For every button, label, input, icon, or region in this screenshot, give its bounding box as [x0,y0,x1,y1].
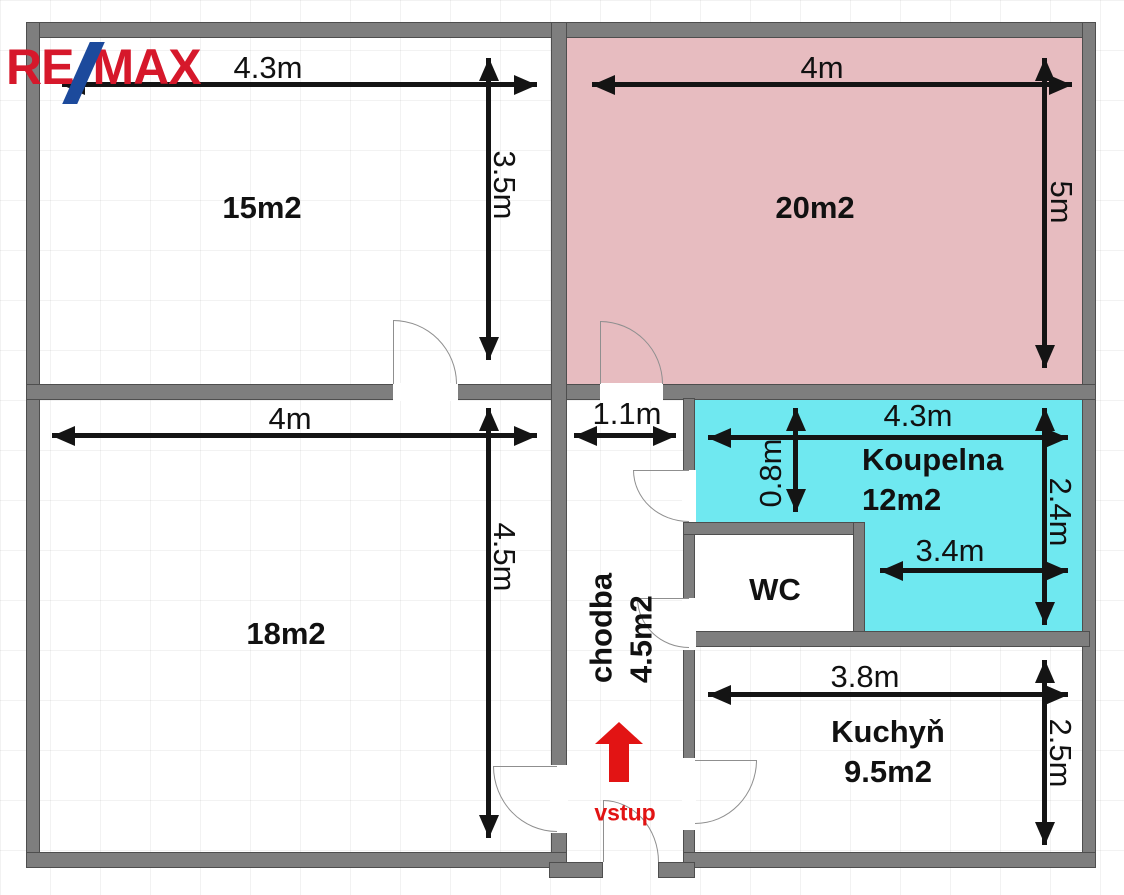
dim-arrow-chodba-width [574,433,676,438]
wall-entrance-right [658,862,695,878]
dim-label-kuchyn-width: 3.8m [831,659,900,695]
dim-label-r20-width: 4m [800,50,843,86]
room-label-18m2: 18m2 [246,616,325,652]
kuchyn-area: 9.5m2 [831,752,945,792]
door-arc-15m2 [393,320,457,384]
dim-label-r15-height: 3.5m [486,151,522,220]
entrance-arrow-shaft [609,743,629,782]
wall-wc-right [853,522,865,647]
chodba-area: 4.5m2 [622,573,662,683]
door-opening-15m2 [393,383,458,401]
koupelna-area: 12m2 [862,480,1003,520]
dim-label-r18-height: 4.5m [486,523,522,592]
entrance-arrow-icon [595,722,643,782]
dim-label-koupelna-width: 4.3m [884,398,953,434]
wall-right [1082,22,1096,868]
entrance-label: vstup [594,800,655,827]
wall-mid-vertical [551,22,567,878]
dim-label-koupelna-height: 2.4m [1042,478,1078,547]
wall-left [26,22,40,868]
logo-max: MAX [92,42,200,92]
dim-label-koupelna-inner-width: 3.4m [916,533,985,569]
dim-label-chodba-width: 1.1m [593,396,662,432]
dim-label-r20-height: 5m [1043,180,1079,223]
room-label-chodba: chodba 4.5m2 [582,573,663,683]
dim-label-koupelna-niche: 0.8m [753,439,789,508]
wall-bottom-left [26,852,567,868]
wall-kitchen-top [683,631,1090,647]
logo-re: RE [6,42,73,92]
dim-arrow-koupelna-niche [793,408,798,512]
wall-wc-top [683,522,865,535]
remax-logo: RE MAX [6,42,201,104]
wall-entrance-left [549,862,603,878]
room-label-15m2: 15m2 [222,190,301,226]
dim-arrow-r18-height [486,408,491,838]
dim-label-kuchyn-height: 2.5m [1042,719,1078,788]
dim-label-r15-width: 4.3m [234,50,303,86]
room-label-kuchyn: Kuchyň 9.5m2 [831,712,945,793]
door-arc-kitchen [695,760,757,824]
kuchyn-name: Kuchyň [831,712,945,752]
dim-label-r18-width: 4m [268,401,311,437]
door-opening-kitchen [682,758,696,830]
door-arc-koupelna [633,470,689,522]
floor-plan: 4.3m 3.5m 4m 5m 4m 4.5m 1.1m 4.3m 0.8m 2… [0,0,1124,895]
door-arc-18m2 [493,766,557,832]
room-label-20m2: 20m2 [775,190,854,226]
chodba-name: chodba [582,573,622,683]
entrance-arrow-head [595,722,643,744]
room-label-koupelna: Koupelna 12m2 [862,440,1003,521]
koupelna-name: Koupelna [862,440,1003,480]
room-label-wc: WC [749,572,801,608]
wall-bottom-right [683,852,1096,868]
